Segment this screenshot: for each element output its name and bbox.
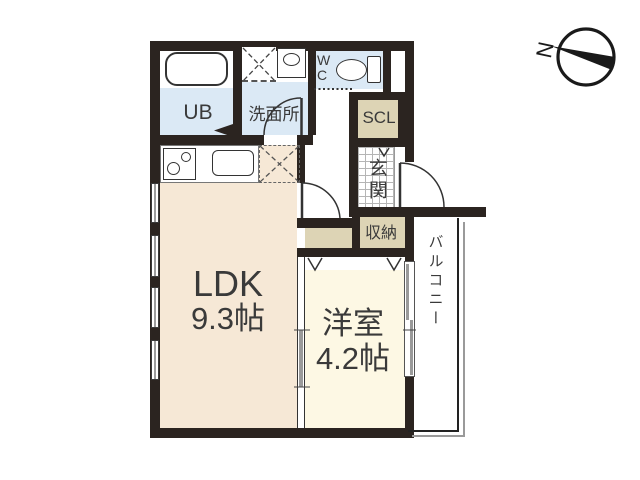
label-western-room: 洋室 [303,307,403,341]
label-scl: SCL [355,109,403,128]
label-washroom: 洗面所 [243,106,305,125]
label-ub: UB [170,101,226,124]
label-wc: W C [317,53,333,84]
label-ldk: LDK [157,264,299,304]
compass-north-label: N [531,39,559,60]
label-balcony: バルコニー [426,219,443,344]
door-arc-ldk [302,183,340,218]
door-ub-triangle [214,124,233,137]
label-wc-line2: C [317,68,333,83]
closet-v-mark-right [387,258,401,270]
label-storage: 収納 [347,225,415,243]
door-arc-entrance [400,163,444,207]
label-genkan: 玄関 [365,152,386,208]
washer-x-mark [243,48,275,81]
label-western-room-size: 4.2帖 [303,342,403,376]
label-wc-line1: W [317,53,333,68]
closet-v-mark-left [308,258,322,270]
fridge-x-mark [260,146,299,182]
floorplan-canvas: N UB 洗面所 W C SCL 玄関 収納 LDK 9.3帖 洋室 4.2帖 … [0,0,640,480]
label-ldk-size: 9.3帖 [157,302,299,336]
